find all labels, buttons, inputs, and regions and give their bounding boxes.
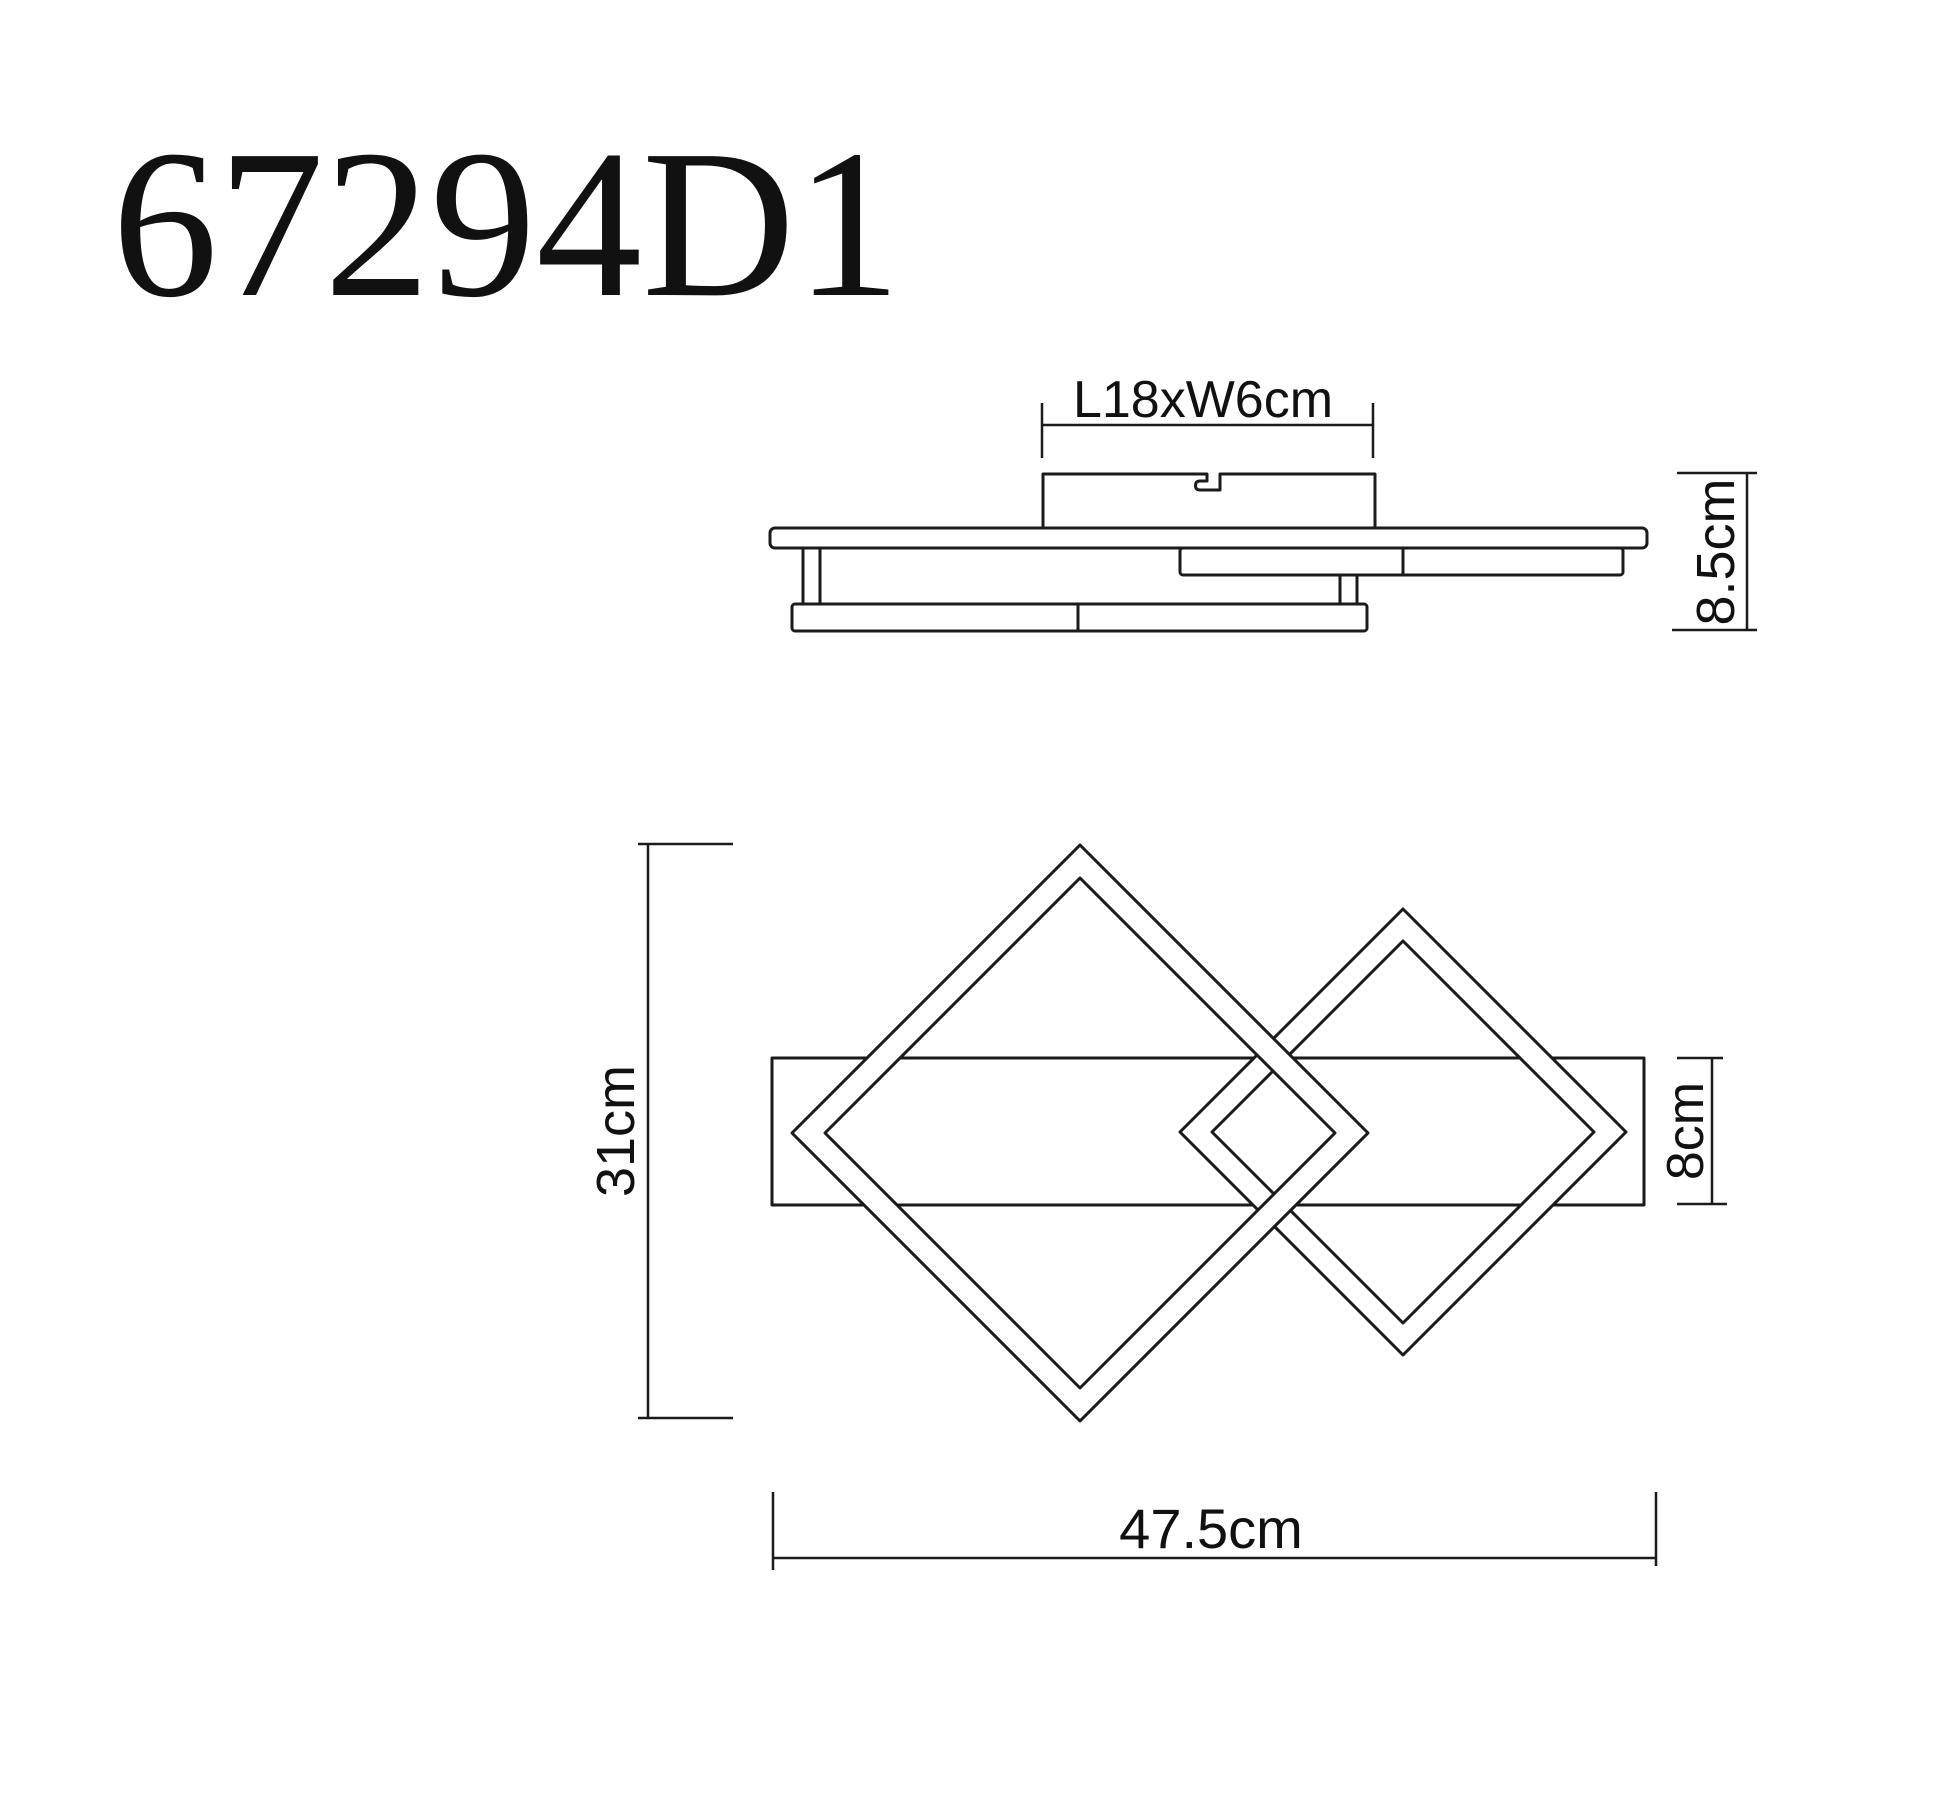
right-post [1340,575,1357,605]
bar-height-dimension-label: 8cm [1657,1082,1715,1180]
canopy-dimension-label: L18xW6cm [1073,371,1333,429]
canopy-dimension: L18xW6cm [1042,371,1373,458]
bar-height-dimension: 8cm [1657,1058,1727,1204]
overall-width-dimension: 47.5cm [773,1492,1656,1570]
canopy-box [1043,474,1375,529]
technical-drawing-page: 67294D1 L18xW6cm [0,0,1940,1795]
overall-height-dimension: 31cm [586,844,733,1418]
overall-height-dimension-label: 31cm [586,1065,646,1197]
left-post [803,548,820,604]
side-view: L18xW6cm 8.5cm [770,371,1757,631]
fixture-height-dimension: 8.5cm [1672,473,1757,630]
plan-view: 31cm 8cm 47.5cm [586,844,1727,1570]
fixture-height-dimension-label: 8.5cm [1686,478,1746,625]
lamp-technical-drawing: L18xW6cm 8.5cm 31cm [0,0,1940,1795]
ceiling-plate [770,528,1647,548]
overall-width-dimension-label: 47.5cm [1119,1497,1303,1560]
